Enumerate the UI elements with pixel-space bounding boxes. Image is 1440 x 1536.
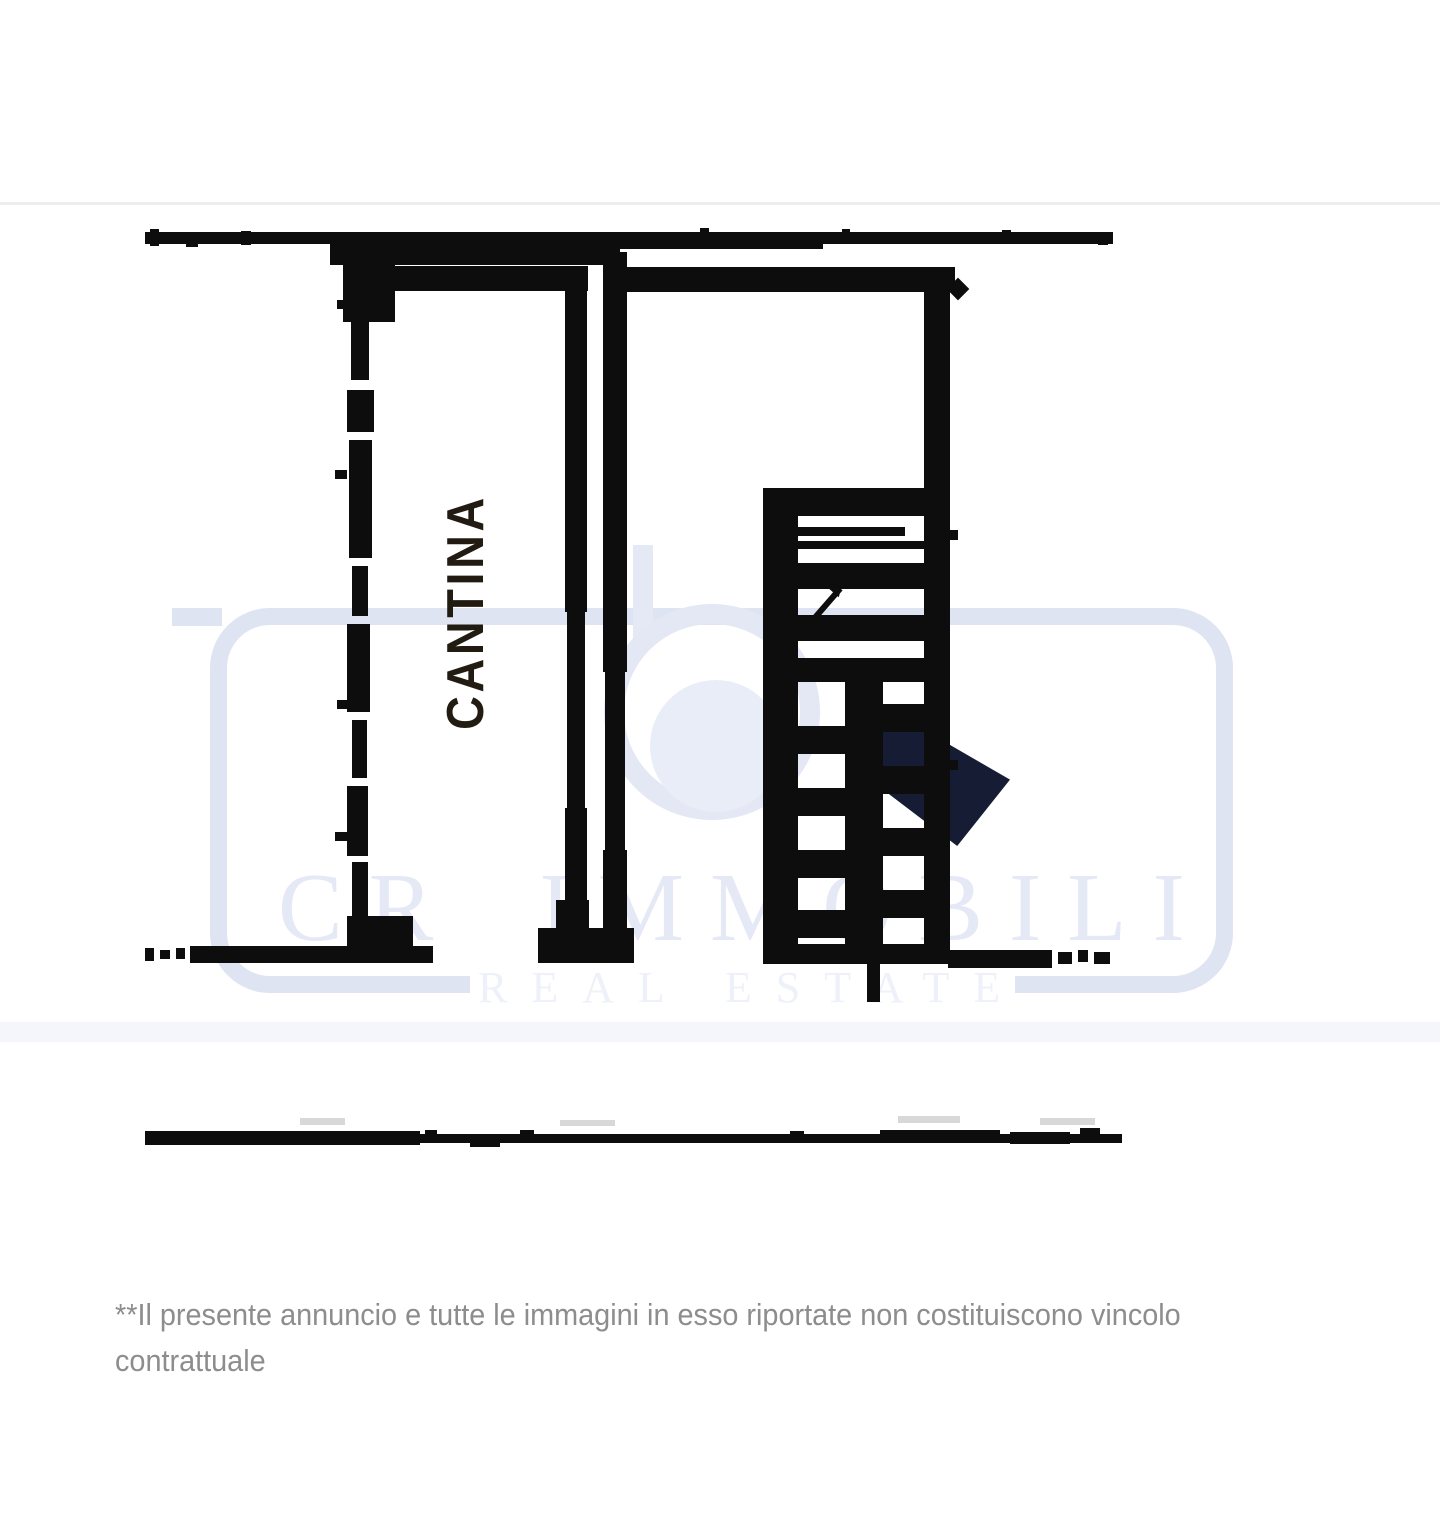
section-faint-mark: [300, 1118, 345, 1125]
section-line-overlay: [880, 1130, 1000, 1141]
cantina-top-wall: [345, 266, 588, 291]
cantina-left-wall-seg: [352, 862, 368, 920]
wall-bottom-right-dash: [1094, 952, 1110, 964]
cantina-left-wall-seg: [352, 566, 368, 616]
cantina-right-wall-seg: [565, 282, 587, 612]
stair-tread-left: [798, 788, 845, 816]
wall-bottom-left: [190, 946, 433, 963]
stair-tread: [798, 541, 924, 549]
stair-tread-right: [883, 890, 924, 918]
wall-bottom-left-dash: [160, 950, 170, 959]
middle-wall-seg: [603, 252, 627, 672]
rightroom-top-wall: [603, 267, 955, 292]
stair-tread-right: [883, 704, 924, 732]
wall-bottom-left-dash: [145, 948, 154, 961]
wall-top-tick: [241, 231, 251, 245]
stair-tread-right: [883, 766, 924, 794]
cantina-left-wall-tick: [335, 470, 347, 479]
wall-bottom-right: [948, 950, 1052, 968]
wall-top-thick-overlay: [330, 238, 620, 265]
section-line-tick: [425, 1130, 437, 1139]
middle-wall-seg: [605, 672, 625, 852]
stair-tread-left: [798, 726, 845, 754]
disclaimer-line1: **Il presente annuncio e tutte le immagi…: [115, 1292, 1352, 1338]
cantina-left-wall-tick: [335, 832, 347, 841]
section-line-tick: [1080, 1128, 1100, 1137]
middle-wall-foot-upper: [556, 900, 589, 934]
room-label-cantina: CANTINA: [436, 495, 496, 729]
section-faint-mark: [898, 1116, 960, 1123]
wall-bottom-left-dash: [176, 948, 185, 959]
section-line-thick-left: [145, 1131, 420, 1145]
stair-tread-left: [798, 850, 845, 878]
stair-tread-left: [798, 910, 845, 938]
rightroom-right-wall-tick: [950, 530, 958, 540]
real-estate-floorplan-page: CRIMMOBILI REALESTATE: [0, 0, 1440, 1536]
section-line-tick: [790, 1131, 804, 1140]
section-line-tick: [520, 1130, 534, 1139]
disclaimer-text: **Il presente annuncio e tutte le immagi…: [115, 1292, 1352, 1384]
wall-top-tick: [150, 229, 159, 246]
stair-tread: [798, 563, 924, 589]
wall-bottom-right-dash: [1058, 952, 1072, 964]
stair-middle-stringer: [845, 664, 883, 964]
wall-top-tick: [1002, 230, 1011, 243]
wall-bottom-right-dash: [1078, 950, 1088, 962]
cantina-left-wall-tick: [337, 700, 347, 709]
wall-top-tick: [186, 236, 198, 247]
stair-tread-right: [883, 828, 924, 856]
cantina-left-wall-seg: [352, 720, 367, 778]
stair-tread: [798, 527, 905, 536]
wall-top-tick: [700, 228, 709, 239]
stair-left-stringer: [763, 488, 798, 964]
cantina-left-wall-seg: [347, 786, 368, 856]
wall-top-tick: [1098, 233, 1108, 245]
cantina-left-wall-tick: [337, 300, 347, 309]
wall-top-tick: [842, 229, 850, 242]
section-faint-mark: [1040, 1118, 1095, 1125]
cantina-left-wall-seg: [351, 322, 369, 380]
cantina-left-wall-seg: [347, 390, 374, 432]
rightroom-right-wall-tick: [950, 760, 958, 770]
cantina-left-wall-seg: [349, 440, 372, 558]
stair-bottom-wall: [763, 944, 950, 964]
section-faint-mark: [560, 1120, 615, 1126]
cantina-left-wall-seg: [347, 624, 370, 712]
wall-top-overlay2: [618, 234, 823, 249]
section-line-overlay: [1010, 1132, 1070, 1144]
disclaimer-line2: contrattuale: [115, 1338, 1352, 1384]
cantina-right-wall-seg: [567, 612, 585, 810]
rightroom-right-wall: [924, 267, 950, 964]
section-line-tick: [470, 1138, 500, 1147]
